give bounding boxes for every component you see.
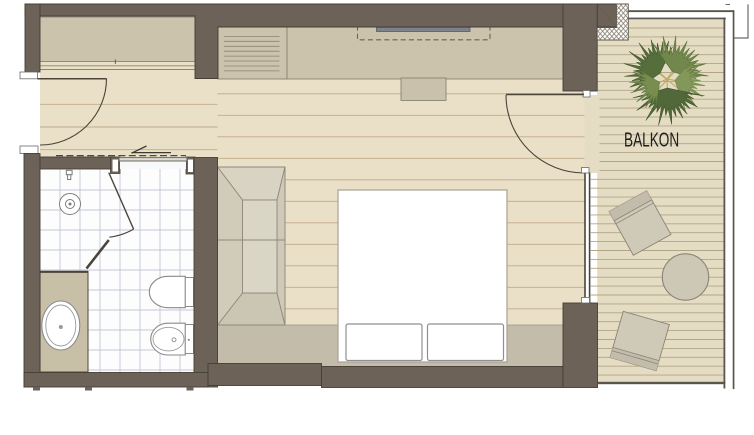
svg-text:BALKON: BALKON: [624, 129, 679, 151]
